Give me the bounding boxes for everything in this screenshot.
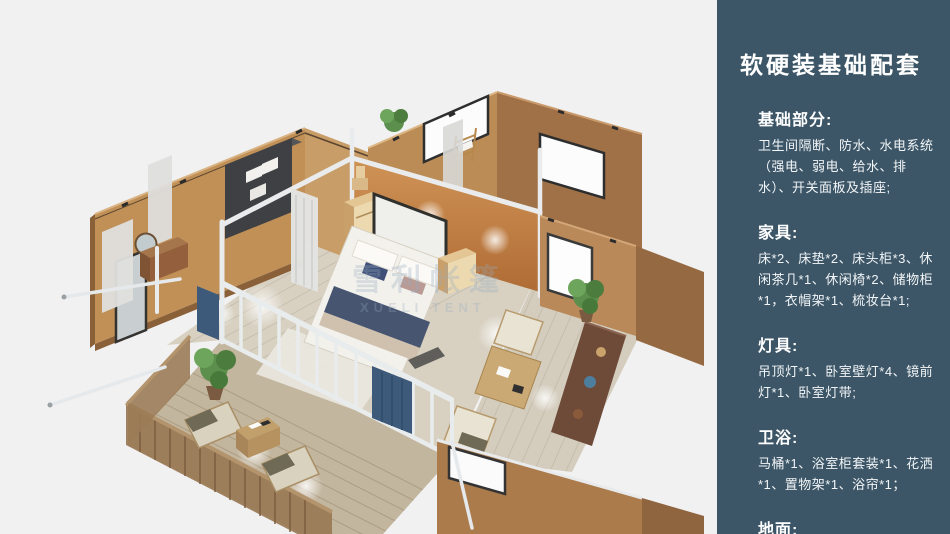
wall-lamp-glow [480, 225, 510, 255]
section-heading-basics: 基础部分: [758, 106, 934, 130]
section-furniture: 家具: 床*2、床垫*2、床头柜*3、休闲茶几*1、休闲椅*2、储物柜*1，衣帽… [758, 219, 934, 311]
slide: 雪利帐篷 XUELI TENT 软硬装基础配套 基础部分: 卫生间隔断、防水、水… [0, 0, 950, 534]
xueli-watermark: 雪利帐篷 XUELI TENT [352, 264, 508, 315]
pole-cap [48, 403, 53, 408]
page-title: 软硬装基础配套 [740, 46, 934, 80]
blue-jar [584, 376, 596, 388]
section-body-furniture: 床*2、床垫*2、床头柜*3、休闲茶几*1、休闲椅*2、储物柜*1，衣帽架*1、… [758, 248, 934, 311]
section-heading-lighting: 灯具: [758, 332, 934, 356]
section-bathroom: 卫浴: 马桶*1、浴室柜套装*1、花洒*1、置物架*1、浴帘*1； [758, 424, 934, 495]
section-body-bathroom: 马桶*1、浴室柜套装*1、花洒*1、置物架*1、浴帘*1； [758, 453, 934, 495]
watermark-cn: 雪利帐篷 [352, 264, 508, 297]
watermark-en: XUELI TENT [360, 300, 486, 315]
section-body-basics: 卫生间隔断、防水、水电系统（强电、弱电、给水、排水）、开关面板及插座; [758, 135, 934, 198]
section-heading-bathroom: 卫浴: [758, 424, 934, 448]
section-heading-flooring: 地面: [758, 516, 934, 534]
curtain-navy [197, 286, 219, 340]
section-lighting: 灯具: 吊顶灯*1、卧室壁灯*4、镜前灯*1、卧室灯带; [758, 332, 934, 403]
tent-house-isometric-render: 雪利帐篷 XUELI TENT [0, 0, 717, 534]
pole-cap [62, 295, 67, 300]
section-basics: 基础部分: 卫生间隔断、防水、水电系统（强电、弱电、给水、排水）、开关面板及插座… [758, 106, 934, 198]
section-flooring: 地面: 强化木地板、卫生间防滑防潮石塑板; [758, 516, 934, 534]
section-heading-furniture: 家具: [758, 219, 934, 243]
render-area: 雪利帐篷 XUELI TENT [0, 0, 717, 534]
curtain [102, 219, 133, 313]
spec-panel: 软硬装基础配套 基础部分: 卫生间隔断、防水、水电系统（强电、弱电、给水、排水）… [717, 0, 950, 534]
section-body-lighting: 吊顶灯*1、卧室壁灯*4、镜前灯*1、卧室灯带; [758, 361, 934, 403]
